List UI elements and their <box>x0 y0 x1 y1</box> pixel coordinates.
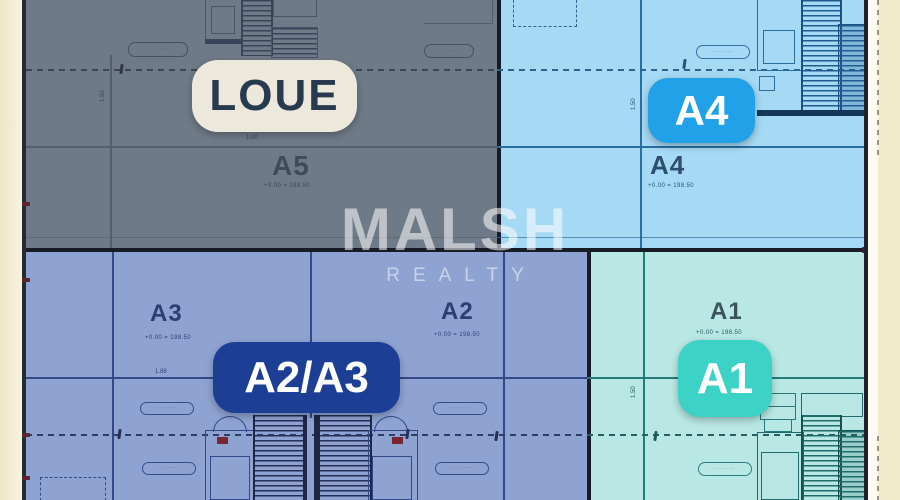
stairwell-a2a3-stairs-left <box>253 415 307 500</box>
unit-boundary-a5-a4 <box>497 0 501 248</box>
page-margin-left <box>0 0 22 500</box>
stairwell-a2a3-room-right-inner <box>372 456 412 500</box>
dashed-zone-outline <box>513 0 577 27</box>
grid-line <box>497 146 864 148</box>
tick-mark <box>22 278 30 282</box>
plan-label-pill: ······· <box>140 402 194 415</box>
stairwell-a2a3-stairs-right <box>318 415 372 500</box>
unit-label-a2: A2 <box>441 298 474 326</box>
unit-boundary-a2-a1 <box>587 252 591 500</box>
tick-mark <box>22 202 30 206</box>
plan-label-pill: ······· <box>698 462 752 476</box>
dimension-label: 1.88 <box>155 369 167 375</box>
plan-label-pill: ······· <box>142 462 196 475</box>
stairwell-a1-landing <box>801 393 863 417</box>
grid-line <box>26 237 497 238</box>
grid-line <box>643 252 645 500</box>
page-margin-right <box>868 0 900 500</box>
dimension-label: 1.50 <box>631 98 637 110</box>
dashed-margin-line <box>877 0 879 160</box>
door-marker <box>217 437 228 444</box>
stairwell-a5-stairs <box>271 27 318 58</box>
grid-line <box>110 55 112 248</box>
stairwell-wall <box>303 415 307 500</box>
grid-line <box>112 252 114 500</box>
stairwell-a2a3-room-left-inner <box>210 456 250 500</box>
stairwell-a4-wall <box>757 110 864 116</box>
a2a3-unit-badge[interactable]: A2/A3 <box>213 342 400 413</box>
unit-label-a4: A4 <box>650 150 685 181</box>
plan-label-pill: ······· <box>424 44 474 58</box>
floorplan-canvas: ······· ······· ······· ······· ······· … <box>0 0 900 500</box>
elevation-note-a4: +0.00 = 198.50 <box>648 183 694 189</box>
grid-line <box>640 0 642 248</box>
stairwell-a1-room-inner <box>761 452 799 500</box>
plan-label-pill: ······· <box>696 45 750 59</box>
stairwell-a4-box <box>759 76 775 91</box>
tick-mark <box>22 433 30 437</box>
stairwell-a1-stairs <box>838 430 866 500</box>
plan-label-pill: ······· <box>435 462 489 475</box>
elevation-note-a2: +0.00 = 198.50 <box>434 332 480 338</box>
dimension-label: 1.50 <box>100 90 106 102</box>
elevation-note-a5: +0.00 = 198.50 <box>264 183 310 189</box>
dashed-margin-line <box>877 436 879 500</box>
grid-line <box>497 237 864 238</box>
tick-mark <box>22 476 30 480</box>
door-marker <box>392 437 403 444</box>
unit-label-a1: A1 <box>710 298 743 326</box>
unit-label-a3: A3 <box>150 300 183 328</box>
dashed-zone-outline <box>40 477 106 500</box>
elevation-note-a3: +0.00 = 198.50 <box>145 335 191 341</box>
dimension-label: 1.50 <box>631 386 637 398</box>
stairwell-a4-stairs <box>801 0 842 112</box>
a1-unit-badge[interactable]: A1 <box>678 340 772 417</box>
unit-boundary-horizontal <box>26 248 864 252</box>
loue-status-badge[interactable]: LOUE <box>192 60 357 132</box>
a4-unit-badge[interactable]: A4 <box>648 78 755 143</box>
grid-line <box>503 252 505 500</box>
stairwell-a4-stairs <box>838 24 866 116</box>
stairwell-a1-stairs <box>801 415 842 500</box>
room-outline <box>424 0 493 24</box>
dimension-label: 1.00 <box>246 135 258 141</box>
stairwell-a4-room-inner <box>763 30 795 64</box>
stairwell-a5-stairs <box>241 0 273 56</box>
plan-label-pill: ······· <box>128 42 188 57</box>
stairwell-a5-box <box>273 0 317 17</box>
stairwell-a5-wall <box>205 39 243 44</box>
elevation-note-a1: +0.00 = 198.50 <box>696 330 742 336</box>
grid-line <box>26 146 497 148</box>
plan-label-pill: ······· <box>433 402 487 415</box>
stairwell-a5-room-inner <box>211 6 235 34</box>
unit-label-a5: A5 <box>272 150 310 182</box>
stairwell-a1-box <box>764 419 792 432</box>
